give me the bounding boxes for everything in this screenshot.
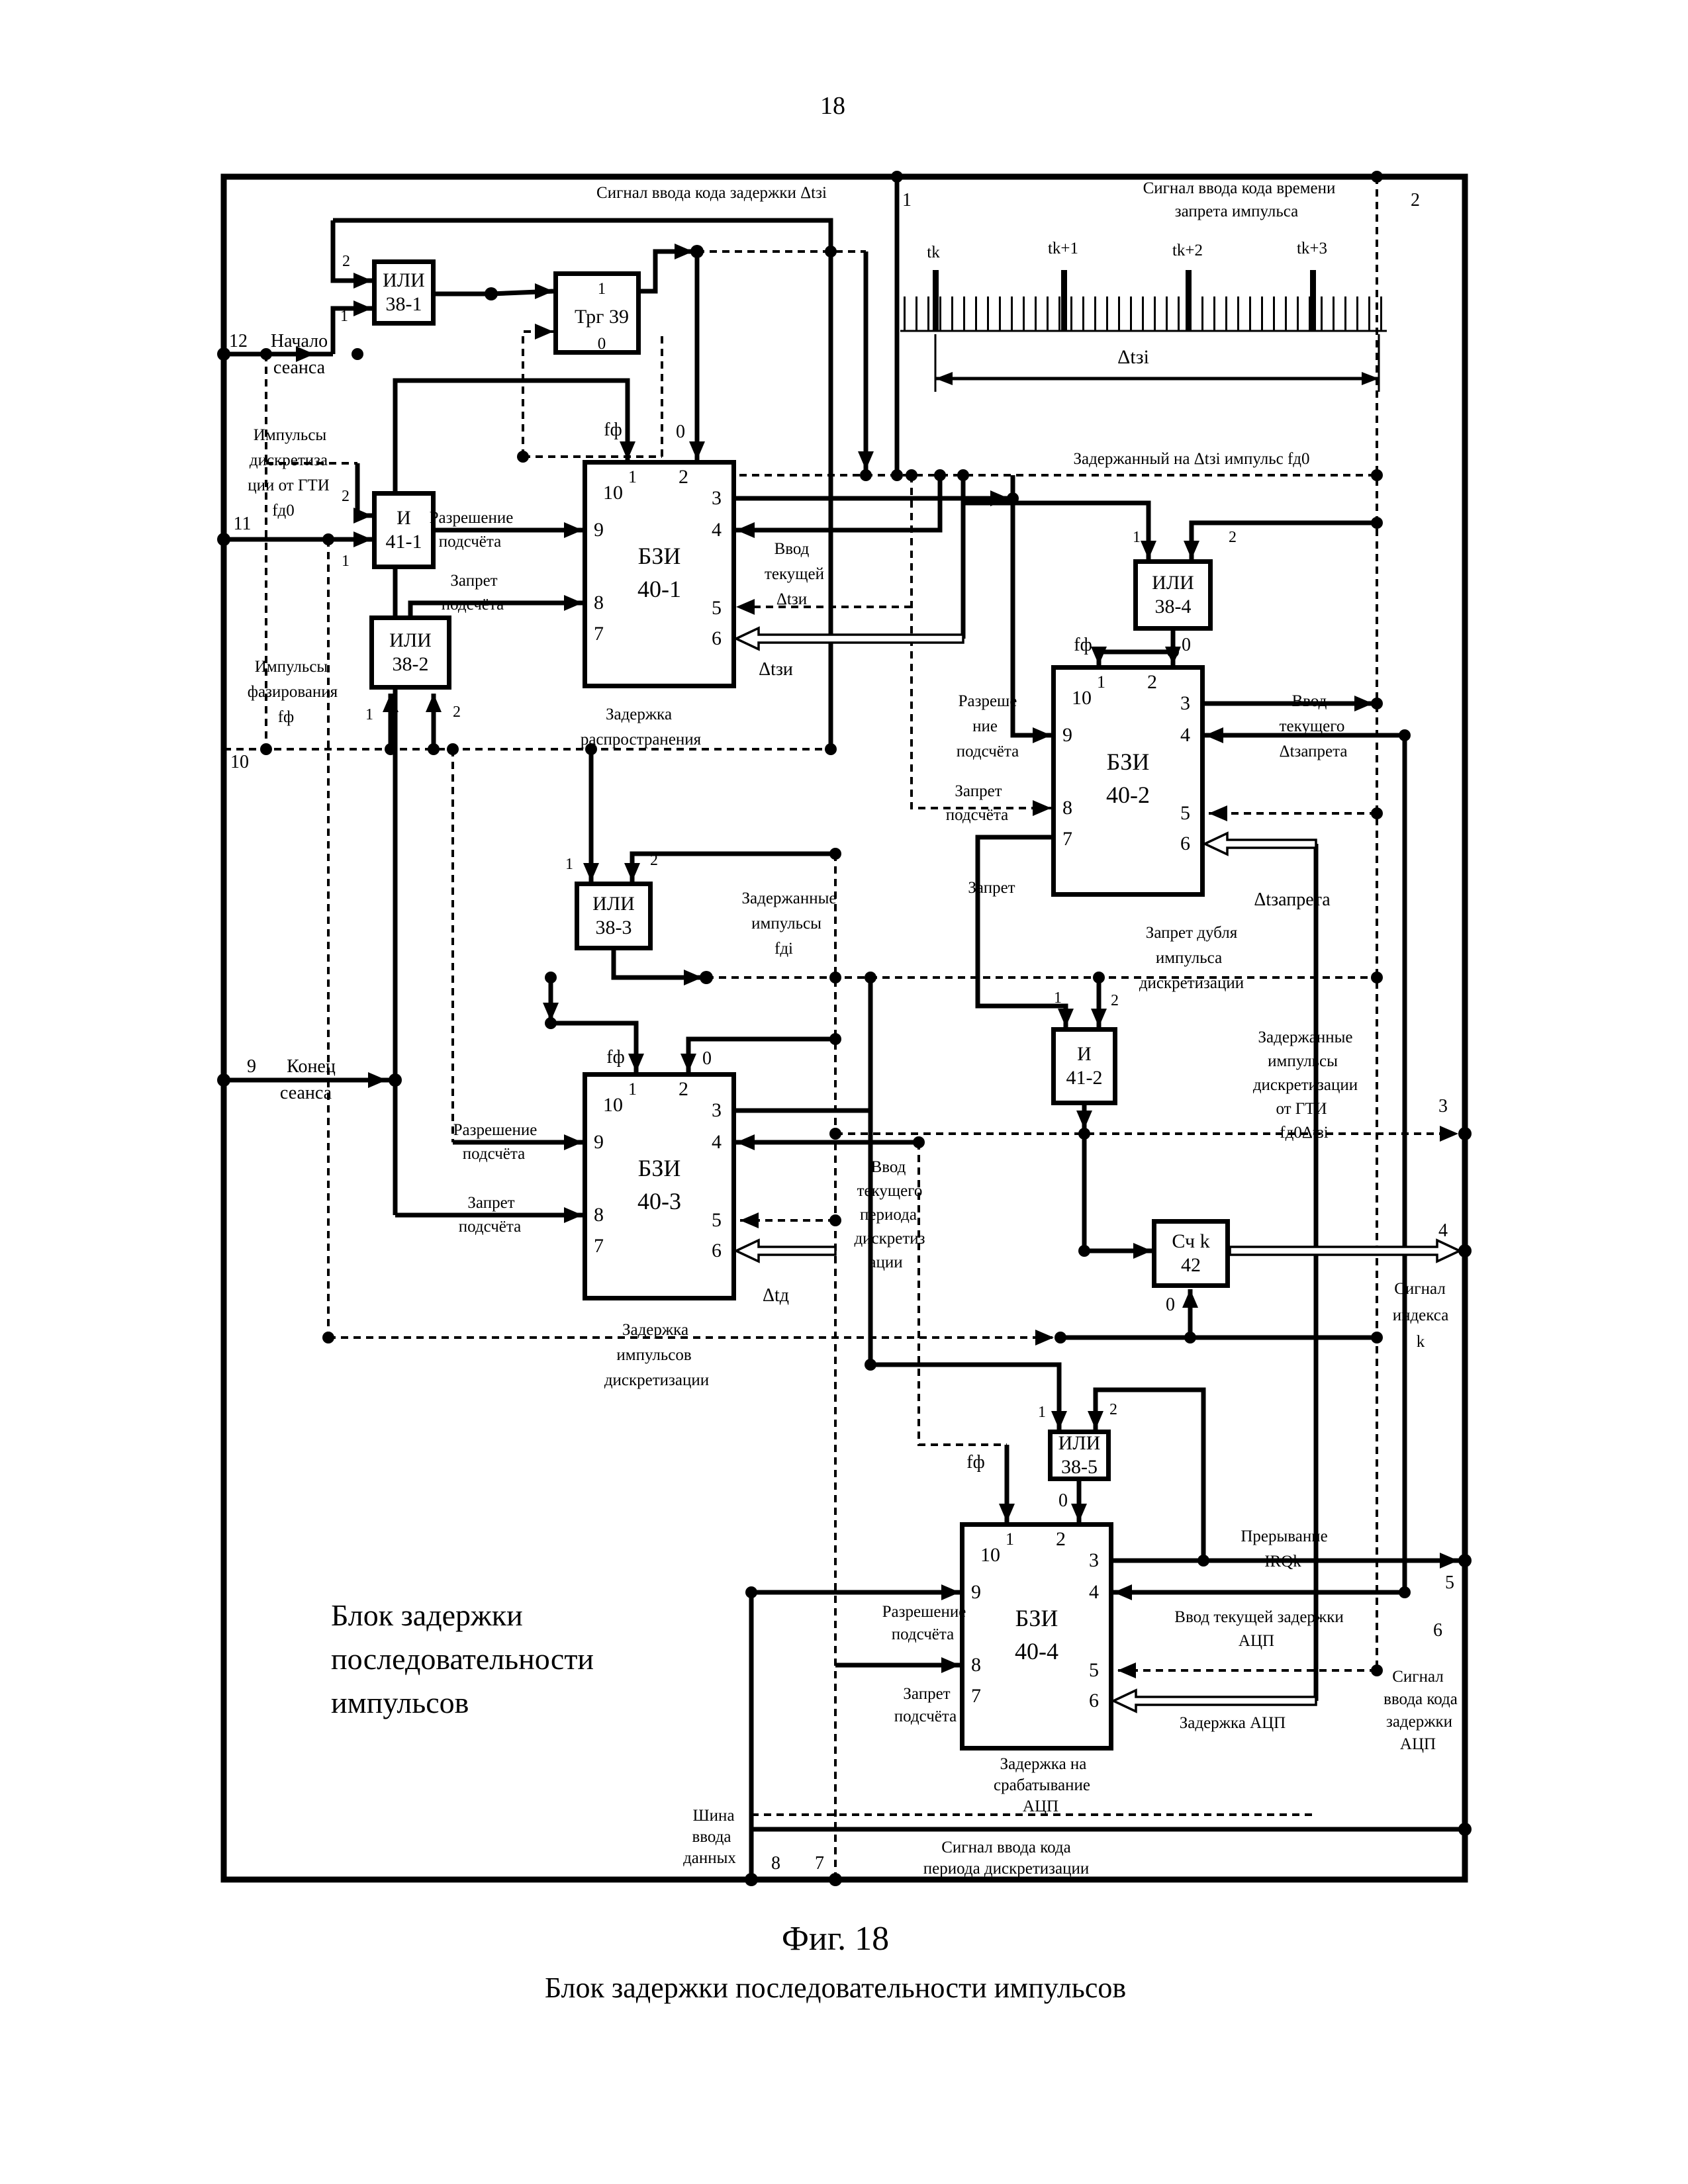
pin-10: 10 <box>1072 688 1092 708</box>
port-6: 6 <box>1433 1622 1442 1639</box>
label-delayed-pulses-2: импульсы <box>751 915 821 933</box>
label-adc-trigger-delay-3: АЦП <box>1023 1798 1058 1815</box>
label-sampling-delay-1: Задержка <box>622 1322 688 1339</box>
trigger-39: 1 Трг 39 0 <box>553 271 641 355</box>
gate-label: ИЛИ <box>383 269 425 293</box>
port-2: 2 <box>1411 192 1420 209</box>
pin-10: 10 <box>603 1095 623 1115</box>
label-session-end-2: сеанса <box>280 1085 332 1102</box>
label-count-enable-b2-2: ние <box>972 718 998 735</box>
bzi-name: БЗИ <box>1015 1605 1058 1631</box>
gate-label: ИЛИ <box>1152 571 1194 595</box>
label-delayed-gti-2: импульсы <box>1268 1053 1338 1070</box>
pin-1: 1 <box>628 1079 637 1099</box>
timing-delta-label: Δtзi <box>1117 349 1149 366</box>
timing-label-tk3: tk+3 <box>1297 240 1327 257</box>
pin-1: 1 <box>1006 1529 1014 1549</box>
diagram-title-2: последовательности <box>331 1651 594 1668</box>
label-adc-delay-open-arrow: Задержка АЦП <box>1180 1715 1286 1732</box>
pin-4: 4 <box>1089 1582 1099 1602</box>
pin-6: 6 <box>712 629 722 649</box>
pin-2: 2 <box>1147 672 1157 692</box>
gate-number: 38-5 <box>1061 1455 1098 1479</box>
pin-10: 10 <box>980 1545 1000 1565</box>
label-inhibit-signal-2: запрета импульса <box>1175 203 1299 220</box>
page-number: 18 <box>820 97 845 114</box>
port-12: 12 <box>229 333 248 350</box>
label-index-signal-1: Сигнал <box>1394 1281 1445 1298</box>
pin-9: 9 <box>971 1582 981 1602</box>
gate-and-41-1: И 41-1 <box>372 491 436 569</box>
port-10: 10 <box>230 754 249 771</box>
label-phasing-pulses-2: фазирования <box>248 684 338 701</box>
label-delayed-pulse: Задержанный на Δtзi импульс fд0 <box>1073 451 1309 468</box>
pin-4: 4 <box>1180 725 1190 745</box>
pin-7: 7 <box>594 624 604 644</box>
block-bzi-40-4: 1 10 9 8 7 2 3 4 5 6 БЗИ 40-4 <box>960 1522 1113 1751</box>
counter-reset-label: 0 <box>1166 1297 1175 1314</box>
label-enter-period-3: периода <box>860 1206 917 1224</box>
label-session-start-1: Начало <box>271 333 328 350</box>
label-adc-delay-enter-2: АЦП <box>1239 1633 1274 1650</box>
label-delayed-pulses-1: Задержанные <box>742 890 837 907</box>
pin-4: 4 <box>712 1132 722 1152</box>
or3-input1-number: 1 <box>565 856 573 873</box>
label-delayed-gti-3: дискретизации <box>1253 1077 1358 1094</box>
and2-input1-number: 1 <box>1054 989 1062 1007</box>
port-5: 5 <box>1445 1574 1454 1592</box>
label-phasing-pulses-3: fф <box>278 709 295 726</box>
pin-10: 10 <box>603 483 623 503</box>
bzi-name: БЗИ <box>638 543 681 569</box>
pin-7: 7 <box>1062 829 1072 849</box>
label-count-enable-1: Разрешение <box>430 510 514 527</box>
label-index-signal-3: k <box>1417 1334 1425 1351</box>
counter-name: Сч k <box>1172 1230 1209 1253</box>
label-data-bus-2: ввода <box>692 1829 731 1846</box>
label-count-enable-b2-3: подсчёта <box>957 743 1019 760</box>
port-4: 4 <box>1438 1222 1448 1240</box>
label-enter-period-5: ации <box>868 1254 902 1271</box>
label-count-enable-b4-2: подсчёта <box>892 1626 954 1643</box>
bzi-name: БЗИ <box>638 1155 681 1181</box>
pin-3: 3 <box>1180 694 1190 713</box>
gate-number: 38-2 <box>393 653 429 676</box>
pin-4: 4 <box>712 520 722 540</box>
gate-label: И <box>1077 1042 1092 1066</box>
or2-input2-number: 2 <box>453 704 461 721</box>
label-inhibit-signal-1: Сигнал ввода кода времени <box>1143 180 1336 197</box>
pin-1: 1 <box>628 467 637 487</box>
label-count-inhibit-b2-1: Запрет <box>955 783 1002 800</box>
or1-input1-number: 1 <box>340 308 348 325</box>
label-count-enable-2: подсчёта <box>439 533 501 551</box>
label-count-enable-b2-1: Разреше <box>959 693 1017 710</box>
label-enter-inhibit-1: Ввод <box>1292 693 1327 710</box>
label-period-code-signal-2: периода дискретизации <box>923 1860 1090 1878</box>
port-9: 9 <box>247 1058 256 1075</box>
label-adc-code-signal-1: Сигнал <box>1392 1668 1443 1686</box>
pin-3: 3 <box>712 1101 722 1120</box>
pin-9: 9 <box>1062 725 1072 745</box>
label-count-inhibit-b2-2: подсчёта <box>946 807 1008 824</box>
label-sampling-delay-2: импульсов <box>616 1347 691 1364</box>
timing-pulse-tk2 <box>1186 270 1192 331</box>
gate-label: ИЛИ <box>389 629 432 653</box>
bzi4-ff-input-label: fф <box>966 1454 984 1471</box>
gate-label: И <box>397 506 411 530</box>
gate-number: 38-4 <box>1155 595 1192 619</box>
label-enter-inhibit-2: текущего <box>1280 718 1345 735</box>
label-period-code-signal-1: Сигнал ввода кода <box>941 1839 1070 1856</box>
timing-pulse-tk3 <box>1310 270 1316 331</box>
label-delayed-gti-5: fд0Δtзi <box>1280 1124 1328 1142</box>
or2-input1-number: 1 <box>365 706 373 723</box>
label-enter-period-1: Ввод <box>871 1159 906 1176</box>
gate-and-41-2: И 41-2 <box>1051 1027 1117 1105</box>
port-3: 3 <box>1438 1098 1448 1115</box>
bzi-number: 40-2 <box>1106 782 1150 808</box>
pin-7: 7 <box>594 1236 604 1256</box>
timing-pulse-tk <box>933 270 939 331</box>
or3-input2-number: 2 <box>650 852 658 869</box>
trigger-set-pin: 1 <box>598 281 606 298</box>
label-phasing-pulses-1: Импульсы <box>255 659 328 676</box>
bzi1-ff-input-label: fф <box>604 422 622 439</box>
label-delayed-gti-1: Задержанные <box>1258 1029 1353 1046</box>
label-double-inhibit-3: дискретизации <box>1139 975 1244 992</box>
or5-output-zero-label: 0 <box>1058 1492 1068 1510</box>
label-adc-code-signal-4: АЦП <box>1400 1736 1436 1753</box>
label-adc-trigger-delay-2: срабатывание <box>994 1777 1090 1794</box>
caption-figure: Фиг. 18 <box>782 1931 889 1948</box>
label-irq-1: Прерывание <box>1241 1528 1327 1545</box>
label-enter-current-dtzi-2: текущей <box>765 566 824 583</box>
label-inhibit: Запрет <box>968 880 1015 897</box>
gate-label: ИЛИ <box>1058 1432 1101 1455</box>
gate-or-38-2: ИЛИ 38-2 <box>369 615 451 690</box>
timing-pulse-tk1 <box>1061 270 1067 331</box>
bzi-number: 40-1 <box>637 576 681 602</box>
bzi1-zero-input-label: 0 <box>676 424 685 441</box>
gate-or-38-5: ИЛИ 38-5 <box>1048 1430 1111 1481</box>
label-double-inhibit-2: импульса <box>1156 950 1222 967</box>
label-count-enable-b3-2: подсчёта <box>463 1146 525 1163</box>
label-delay-code-signal: Сигнал ввода кода задержки Δtзi <box>596 185 827 202</box>
label-irq-2: IRQk <box>1264 1553 1301 1570</box>
gate-or-38-1: ИЛИ 38-1 <box>372 259 436 326</box>
bzi2-zero-input-label: 0 <box>1182 637 1191 654</box>
pin-3: 3 <box>1089 1551 1099 1570</box>
label-enter-current-dtzi-3: Δtзи <box>776 591 807 608</box>
label-index-signal-2: индекса <box>1393 1307 1449 1324</box>
label-adc-code-signal-2: ввода кода <box>1383 1691 1458 1708</box>
label-delayed-pulses-3: fдi <box>774 940 793 958</box>
trigger-reset-pin: 0 <box>598 336 606 353</box>
or1-input2-number: 2 <box>342 253 350 270</box>
gate-number: 38-3 <box>596 916 632 940</box>
label-propagation-delay-2: распространения <box>581 731 701 749</box>
label-count-enable-b3-1: Разрешение <box>453 1122 538 1139</box>
label-session-end-1: Конец <box>287 1058 336 1075</box>
port-11: 11 <box>234 516 252 533</box>
label-enter-period-4: дискретиз <box>854 1230 925 1248</box>
label-adc-delay-enter-1: Ввод текущей задержки <box>1174 1609 1343 1626</box>
label-dtzapreta-open-arrow: Δtзапрета <box>1254 891 1330 909</box>
label-dtd-open-arrow: Δtд <box>763 1287 789 1304</box>
pin-2: 2 <box>679 467 688 487</box>
trigger-name: Трг 39 <box>575 308 629 326</box>
pin-6: 6 <box>712 1241 722 1261</box>
label-count-inhibit-b3-1: Запрет <box>467 1195 514 1212</box>
pin-7: 7 <box>971 1686 981 1706</box>
and1-input2-number: 2 <box>342 488 350 505</box>
counter-k-42: Сч k 42 <box>1152 1219 1230 1288</box>
or5-input2-number: 2 <box>1109 1401 1117 1418</box>
label-enter-period-2: текущего <box>857 1183 923 1200</box>
port-7: 7 <box>815 1855 824 1872</box>
block-bzi-40-2: 1 10 9 8 7 2 3 4 5 6 БЗИ 40-2 <box>1051 665 1205 897</box>
gate-label: ИЛИ <box>592 892 635 916</box>
gate-number: 41-1 <box>386 530 422 554</box>
label-sampling-pulses-3: ции от ГТИ <box>248 477 330 494</box>
gate-or-38-4: ИЛИ 38-4 <box>1133 559 1213 631</box>
label-sampling-delay-3: дискретизации <box>604 1372 709 1389</box>
port-8: 8 <box>771 1855 780 1872</box>
label-enter-inhibit-3: Δtзапрета <box>1280 743 1348 760</box>
pin-9: 9 <box>594 1132 604 1152</box>
label-adc-code-signal-3: задержки <box>1386 1713 1452 1731</box>
counter-number: 42 <box>1181 1253 1201 1277</box>
label-count-inhibit-2: подсчёта <box>442 596 504 614</box>
gate-number: 38-1 <box>386 293 422 316</box>
label-count-enable-b4-1: Разрешение <box>882 1604 966 1621</box>
label-count-inhibit-b4-2: подсчёта <box>894 1708 957 1725</box>
pin-1: 1 <box>1097 672 1105 692</box>
label-data-bus-1: Шина <box>692 1807 734 1825</box>
label-sampling-pulses-1: Импульсы <box>254 427 326 444</box>
or4-input2-number: 2 <box>1229 529 1237 546</box>
bzi3-zero-input-label: 0 <box>702 1050 712 1068</box>
bzi2-ff-input-label: fф <box>1074 637 1092 654</box>
label-sampling-pulses-2: дискретиза <box>250 452 328 469</box>
bzi-number: 40-4 <box>1015 1638 1058 1664</box>
wiring-layer <box>0 0 1688 2184</box>
label-double-inhibit-1: Запрет дубля <box>1146 925 1237 942</box>
label-count-inhibit-1: Запрет <box>450 572 497 590</box>
block-bzi-40-1: 1 10 9 8 7 2 3 4 5 6 БЗИ 40-1 <box>583 460 736 688</box>
bzi-name: БЗИ <box>1107 749 1150 775</box>
patent-figure-page: ИЛИ 38-1 1 Трг 39 0 И 41-1 ИЛИ 38-2 ИЛИ … <box>0 0 1688 2184</box>
bzi-number: 40-3 <box>637 1188 681 1214</box>
pin-9: 9 <box>594 520 604 540</box>
timing-label-tk1: tk+1 <box>1048 240 1078 257</box>
timing-label-tk2: tk+2 <box>1172 242 1203 259</box>
or5-input1-number: 1 <box>1038 1404 1046 1421</box>
label-enter-current-dtzi-1: Ввод <box>774 541 810 558</box>
gate-number: 41-2 <box>1066 1066 1103 1090</box>
pin-6: 6 <box>1180 834 1190 854</box>
or4-input1-number: 1 <box>1133 529 1141 546</box>
and2-input2-number: 2 <box>1111 992 1119 1009</box>
label-sampling-pulses-4: fд0 <box>272 502 295 520</box>
diagram-title-1: Блок задержки <box>331 1607 523 1624</box>
pin-2: 2 <box>1056 1529 1066 1549</box>
timing-label-tk: tk <box>927 244 939 261</box>
gate-or-38-3: ИЛИ 38-3 <box>575 882 653 950</box>
label-delayed-gti-4: от ГТИ <box>1276 1101 1327 1118</box>
label-adc-trigger-delay-1: Задержка на <box>1000 1756 1087 1773</box>
block-bzi-40-3: 1 10 9 8 7 2 3 4 5 6 БЗИ 40-3 <box>583 1072 736 1300</box>
pin-6: 6 <box>1089 1691 1099 1711</box>
label-data-bus-3: данных <box>683 1850 736 1867</box>
pin-3: 3 <box>712 488 722 508</box>
label-dtzi-open-arrow: Δtзи <box>759 661 793 678</box>
port-1: 1 <box>902 192 912 209</box>
pin-2: 2 <box>679 1079 688 1099</box>
caption-title: Блок задержки последовательности импульс… <box>545 1979 1126 1997</box>
bzi3-ff-input-label: fф <box>606 1049 624 1066</box>
diagram-title-3: импульсов <box>331 1694 469 1711</box>
label-count-inhibit-b4-1: Запрет <box>903 1686 950 1703</box>
label-session-start-2: сеанса <box>273 359 325 377</box>
label-count-inhibit-b3-2: подсчёта <box>459 1218 521 1236</box>
label-propagation-delay-1: Задержка <box>606 706 672 723</box>
and1-input1-number: 1 <box>342 553 350 570</box>
